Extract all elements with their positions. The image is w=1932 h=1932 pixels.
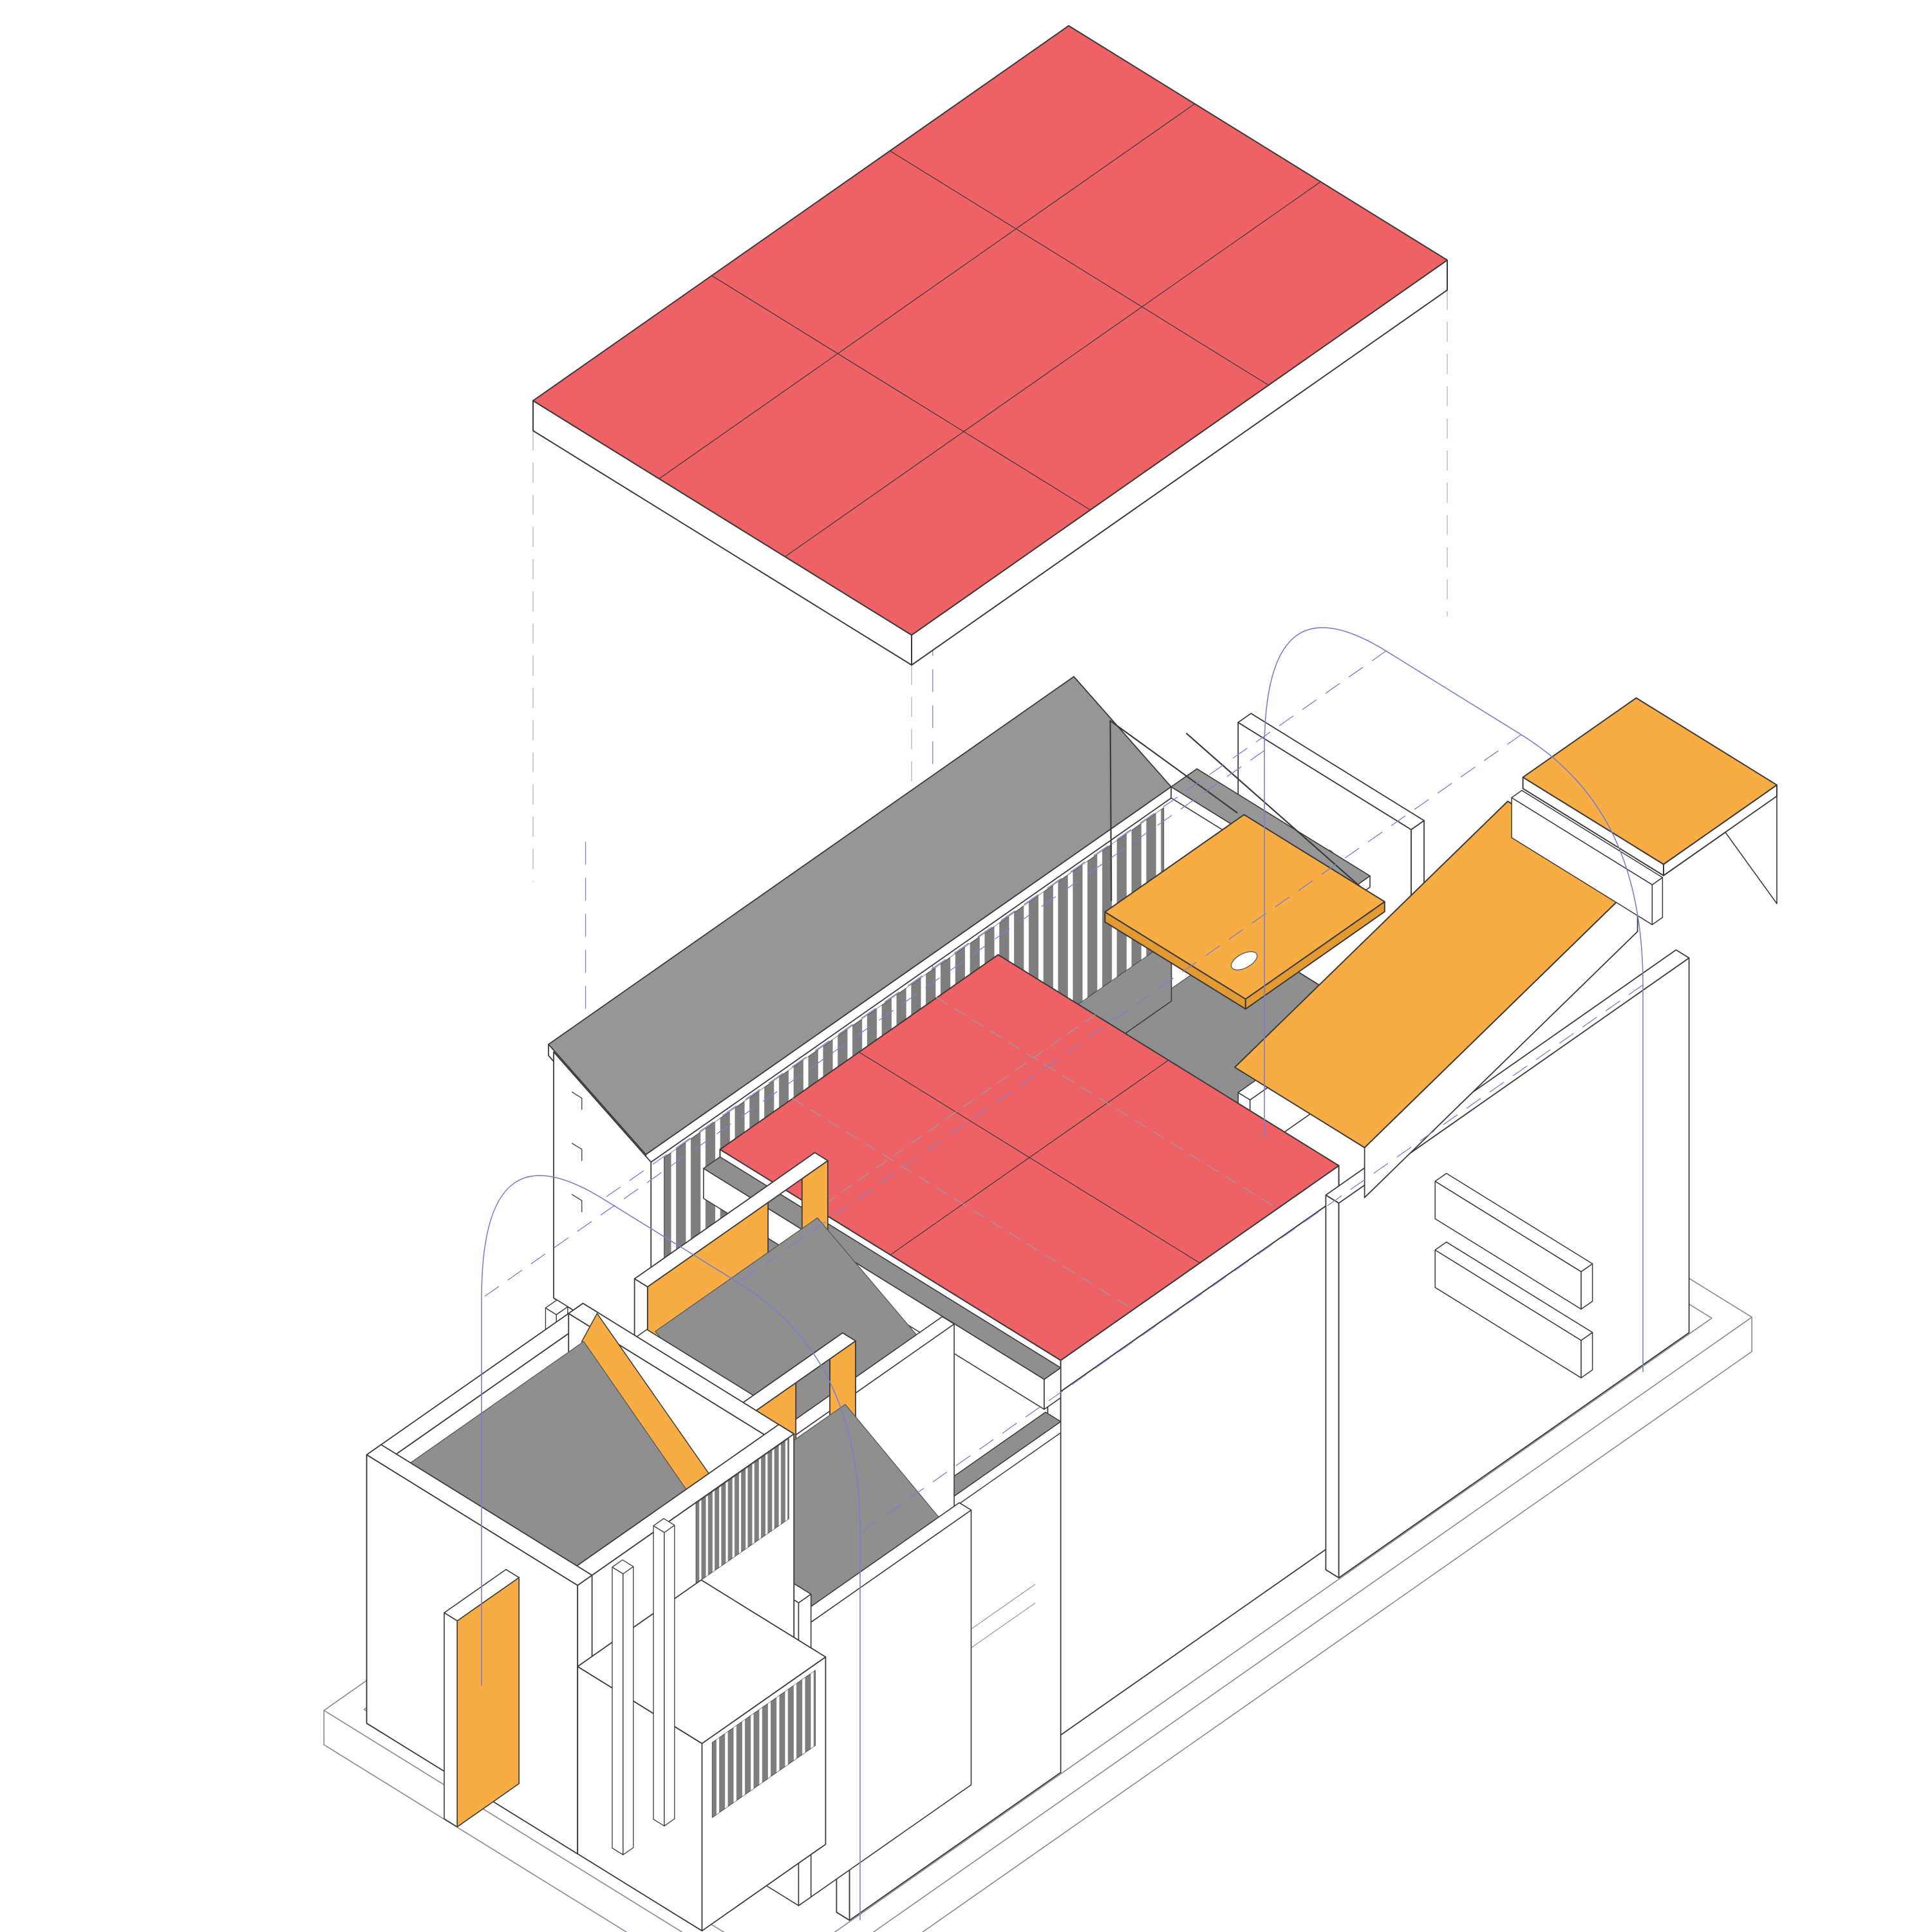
screenshot-root bbox=[0, 0, 1932, 1932]
exploded-axon-svg bbox=[0, 0, 1932, 1932]
exploded-roof-panel bbox=[533, 26, 1447, 665]
slender-post-b bbox=[612, 1560, 633, 1855]
slender-post-a bbox=[653, 1519, 675, 1826]
